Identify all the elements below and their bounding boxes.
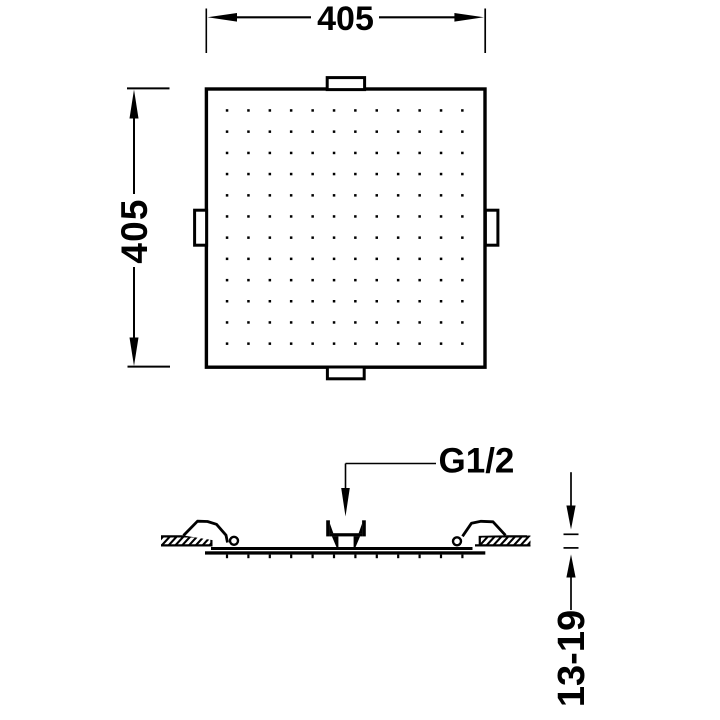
svg-text:405: 405 (317, 0, 374, 38)
svg-text:405: 405 (114, 198, 155, 263)
svg-text:13-19: 13-19 (551, 610, 593, 707)
svg-text:G1/2: G1/2 (439, 441, 515, 480)
